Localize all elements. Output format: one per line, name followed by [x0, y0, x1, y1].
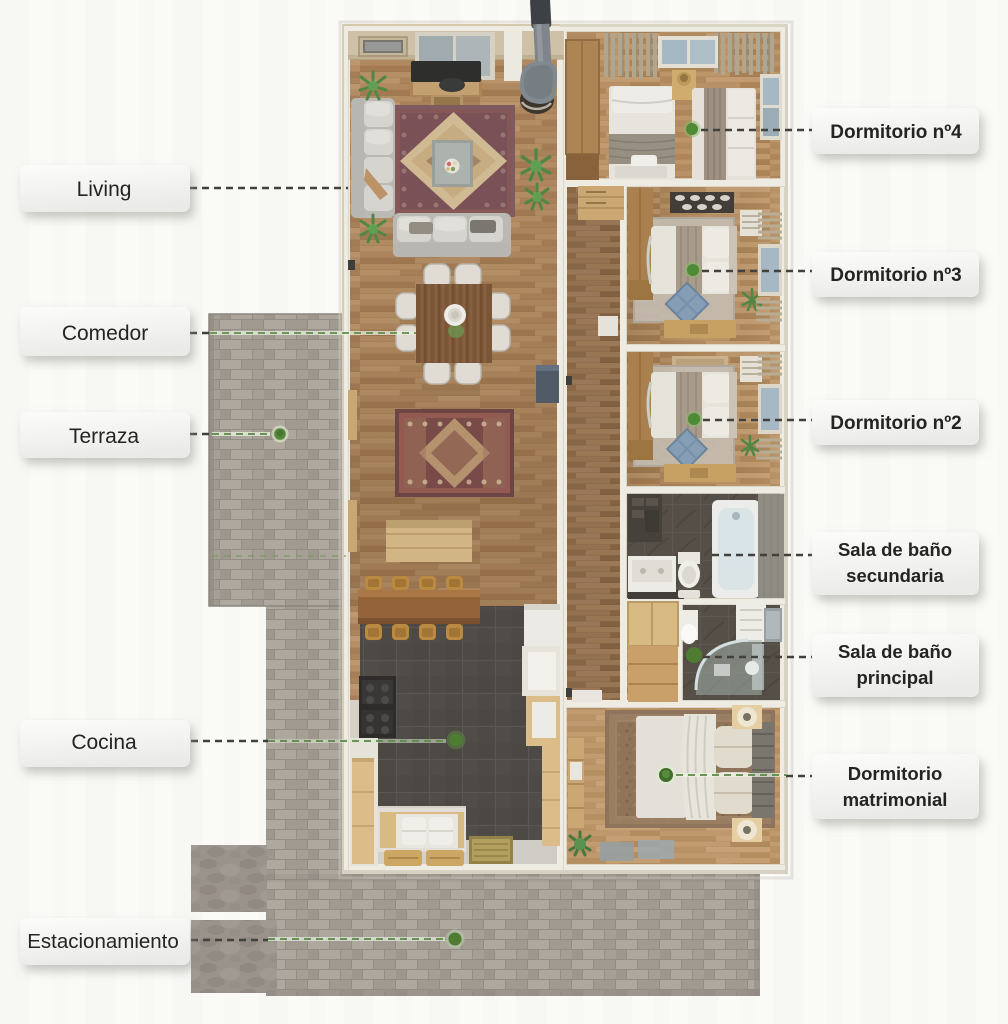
svg-text:Dormitorio nº3: Dormitorio nº3: [830, 265, 962, 286]
svg-text:principal: principal: [856, 667, 933, 688]
svg-text:Dormitorio nº2: Dormitorio nº2: [830, 413, 962, 434]
svg-text:Comedor: Comedor: [62, 322, 148, 345]
svg-text:Dormitorio: Dormitorio: [848, 763, 943, 784]
svg-text:Dormitorio nº4: Dormitorio nº4: [830, 122, 962, 143]
svg-text:secundaria: secundaria: [846, 565, 944, 586]
svg-text:Estacionamiento: Estacionamiento: [27, 930, 179, 953]
svg-text:matrimonial: matrimonial: [843, 789, 948, 810]
svg-text:Sala de baño: Sala de baño: [838, 641, 952, 662]
svg-text:Sala de baño: Sala de baño: [838, 539, 952, 560]
svg-text:Terraza: Terraza: [69, 425, 139, 448]
svg-text:Living: Living: [77, 178, 132, 201]
svg-text:Cocina: Cocina: [71, 731, 137, 754]
